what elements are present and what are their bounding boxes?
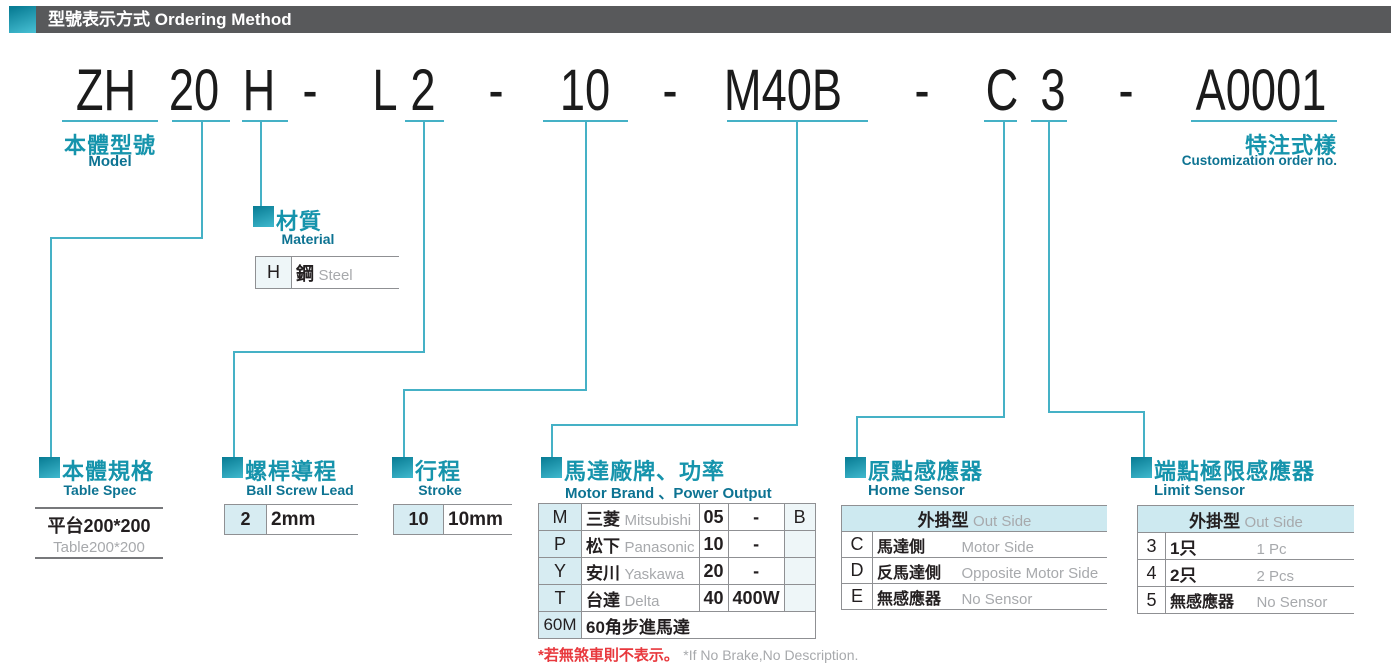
motor-power-cell: - [728,558,784,585]
home-sensor-title-en: Home Sensor [868,482,965,499]
table-row: D 反馬達側 Opposite Motor Side [842,558,1108,584]
home-sensor-value-cell: 無感應器 No Sensor [873,584,1108,610]
table-row: M 三菱 Mitsubishi 05 - B [539,504,816,531]
home-sensor-value-cell: 反馬達側 Opposite Motor Side [873,558,1108,584]
limit-sensor-value-en: 2 Pcs [1256,568,1294,585]
table-row: 外掛型 Out Side [842,506,1108,532]
connector-size-tick [201,122,203,239]
motor-code-cell: P [539,531,582,558]
connector-limit-drop [1143,411,1145,460]
home-sensor-code-cell: C [842,532,873,558]
underline-home-sensor [984,120,1017,122]
motor-brake-cell [784,585,815,612]
limit-sensor-value-cell: 1只 1 Pc [1166,533,1355,560]
connector-home-tick [1003,122,1005,418]
motor-brand-cell: 三菱 Mitsubishi [582,504,700,531]
material-square-icon [253,206,274,227]
connector-material-tick [260,122,262,208]
connector-home-horizontal [856,416,1005,418]
motor-power-code-cell: 40 [699,585,728,612]
limit-sensor-square-icon [1131,457,1152,478]
model-label-en: Model [40,153,180,170]
motor-footnote: *若無煞車則不表示。 *If No Brake,No Description. [538,644,858,665]
connector-home-drop [856,416,858,460]
motor-brand-zh: 松下 [586,537,620,556]
limit-sensor-value-zh: 2只 [1170,561,1252,586]
material-title-en: Material [253,231,363,247]
home-sensor-value-cell: 馬達側 Motor Side [873,532,1108,558]
home-sensor-code-cell: E [842,584,873,610]
table-row: 4 2只 2 Pcs [1138,560,1355,587]
limit-sensor-code-cell: 5 [1138,587,1166,614]
home-sensor-value-zh: 反馬達側 [877,559,957,583]
limit-sensor-value-en: 1 Pc [1256,541,1286,558]
ball-screw-value-cell: 2mm [267,505,359,535]
motor-power-code-cell: 05 [699,504,728,531]
connector-size-drop [50,237,52,460]
motor-brand-cell: 松下 Panasonic [582,531,700,558]
table-row: T 台達 Delta 40 400W [539,585,816,612]
limit-sensor-value-cell: 無感應器 No Sensor [1166,587,1355,614]
table-row: 外掛型 Out Side [1138,506,1355,533]
motor-brand-en: Delta [624,593,659,610]
table-spec-value-zh: 平台200*200 [35,512,163,538]
ball-screw-title-en: Ball Screw Lead [235,482,365,498]
home-sensor-group-header: 外掛型 Out Side [842,506,1108,532]
motor-brand-cell: 台達 Delta [582,585,700,612]
motor-brand-en: Panasonic [624,539,694,556]
ball-screw-value: 2mm [271,509,315,530]
home-sensor-value-en: Motor Side [961,539,1034,556]
table-row: 2 2mm [225,505,359,535]
limit-sensor-table: 外掛型 Out Side 3 1只 1 Pc 4 2只 2 Pcs 5 無感應器… [1137,505,1354,614]
stroke-value-cell: 10mm [444,505,513,535]
table-row: 60M 60角步進馬達 [539,612,816,639]
connector-stroke-tick [585,122,587,391]
motor-power-cell: 400W [728,585,784,612]
motor-brand-zh: 安川 [586,564,620,583]
underline-custom-no [1191,120,1337,122]
stroke-title-en: Stroke [400,482,480,498]
home-sensor-square-icon [845,457,866,478]
motor-power-code-cell: 20 [699,558,728,585]
table-spec-title-en: Table Spec [35,482,165,498]
motor-stepper-label: 60角步進馬達 [586,618,690,637]
motor-brake-cell [784,558,815,585]
motor-power-code-cell: 10 [699,531,728,558]
connector-motor-horizontal [551,424,798,426]
motor-footnote-en: *If No Brake,No Description. [683,647,858,663]
motor-brand-zh: 三菱 [586,510,620,529]
limit-sensor-code-cell: 4 [1138,560,1166,587]
limit-sensor-value-zh: 1只 [1170,534,1252,559]
ball-screw-code-cell: 2 [225,505,267,535]
motor-code-cell: Y [539,558,582,585]
limit-sensor-group-header: 外掛型 Out Side [1138,506,1355,533]
home-sensor-table: 外掛型 Out Side C 馬達側 Motor Side D 反馬達側 Opp… [841,505,1107,610]
motor-brand-en: Yaskawa [624,566,684,583]
table-row: 3 1只 1 Pc [1138,533,1355,560]
motor-power-cell: - [728,531,784,558]
motor-brake-cell: B [784,504,815,531]
limit-sensor-value-zh: 無感應器 [1170,588,1252,612]
connector-lead-drop [233,351,235,460]
material-value-cell: 鋼 Steel [292,257,400,289]
table-row: E 無感應器 No Sensor [842,584,1108,610]
table-spec-square-icon [39,457,60,478]
motor-footnote-zh: *若無煞車則不表示。 [538,647,679,664]
limit-sensor-code-cell: 3 [1138,533,1166,560]
home-sensor-group-zh: 外掛型 [918,511,969,530]
ordering-method-page: 型號表示方式 Ordering Method ZH 20 H - L 2 - 1… [0,0,1391,671]
material-table: H 鋼 Steel [255,256,399,289]
material-value-zh: 鋼 [296,264,314,284]
connector-stroke-drop [403,389,405,460]
model-segment-custom-no: A0001 [1105,62,1391,120]
connector-motor-tick [796,122,798,426]
limit-sensor-group-en: Out Side [1245,514,1303,531]
page-title: 型號表示方式 Ordering Method [48,6,292,33]
motor-square-icon [541,457,562,478]
motor-code-cell: M [539,504,582,531]
table-row: C 馬達側 Motor Side [842,532,1108,558]
underline-body [62,120,158,122]
motor-brake-cell [784,531,815,558]
table-row: H 鋼 Steel [256,257,400,289]
stroke-code-cell: 10 [394,505,444,535]
stroke-square-icon [392,457,413,478]
motor-title-en: Motor Brand 、Power Output [565,482,772,503]
table-row: Y 安川 Yaskawa 20 - [539,558,816,585]
page-title-zh: 型號表示方式 [48,10,150,29]
page-title-en: Ordering Method [155,10,292,29]
limit-sensor-value-en: No Sensor [1256,594,1327,611]
motor-table: M 三菱 Mitsubishi 05 - B P 松下 Panasonic 10… [538,503,816,639]
table-row: 10 10mm [394,505,513,535]
home-sensor-value-zh: 無感應器 [877,585,957,609]
connector-motor-drop [551,424,553,460]
table-row: P 松下 Panasonic 10 - [539,531,816,558]
home-sensor-value-en: No Sensor [961,591,1032,608]
connector-limit-horizontal [1048,411,1145,413]
motor-brand-en: Mitsubishi [624,512,691,529]
limit-sensor-title-en: Limit Sensor [1154,482,1245,499]
ball-screw-table: 2 2mm [224,504,358,535]
material-code-cell: H [256,257,292,289]
motor-power-cell: - [728,504,784,531]
connector-lead-horizontal [233,351,425,353]
home-sensor-group-en: Out Side [973,513,1031,530]
stroke-table: 10 10mm [393,504,512,535]
motor-stepper-label-cell: 60角步進馬達 [582,612,816,639]
ball-screw-square-icon [222,457,243,478]
limit-sensor-group-zh: 外掛型 [1189,512,1240,531]
home-sensor-value-en: Opposite Motor Side [961,565,1098,582]
motor-brand-zh: 台達 [586,591,620,610]
connector-size-horizontal [50,237,203,239]
motor-stepper-code-cell: 60M [539,612,582,639]
motor-code-cell: T [539,585,582,612]
home-sensor-code-cell: D [842,558,873,584]
connector-stroke-horizontal [403,389,587,391]
limit-sensor-value-cell: 2只 2 Pcs [1166,560,1355,587]
table-row: 5 無感應器 No Sensor [1138,587,1355,614]
header-accent-square-icon [9,6,36,33]
table-spec-value-en: Table200*200 [35,539,163,556]
motor-brand-cell: 安川 Yaskawa [582,558,700,585]
customization-label-en: Customization order no. [1157,153,1337,168]
table-spec-box: 平台200*200 Table200*200 [35,507,163,559]
stroke-value: 10mm [448,509,503,530]
connector-limit-tick [1048,122,1050,413]
home-sensor-value-zh: 馬達側 [877,533,957,557]
connector-lead-tick [423,122,425,353]
underline-material [242,120,288,122]
material-value-en: Steel [318,267,352,284]
